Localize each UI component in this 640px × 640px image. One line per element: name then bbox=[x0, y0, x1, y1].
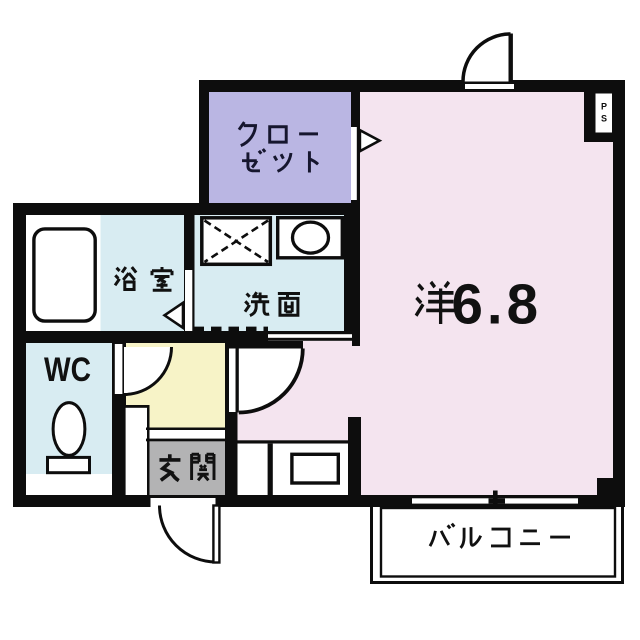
svg-text:WC: WC bbox=[44, 351, 91, 389]
svg-text:S: S bbox=[601, 114, 607, 124]
svg-text:P: P bbox=[601, 102, 607, 112]
svg-text:6.8: 6.8 bbox=[452, 273, 543, 336]
